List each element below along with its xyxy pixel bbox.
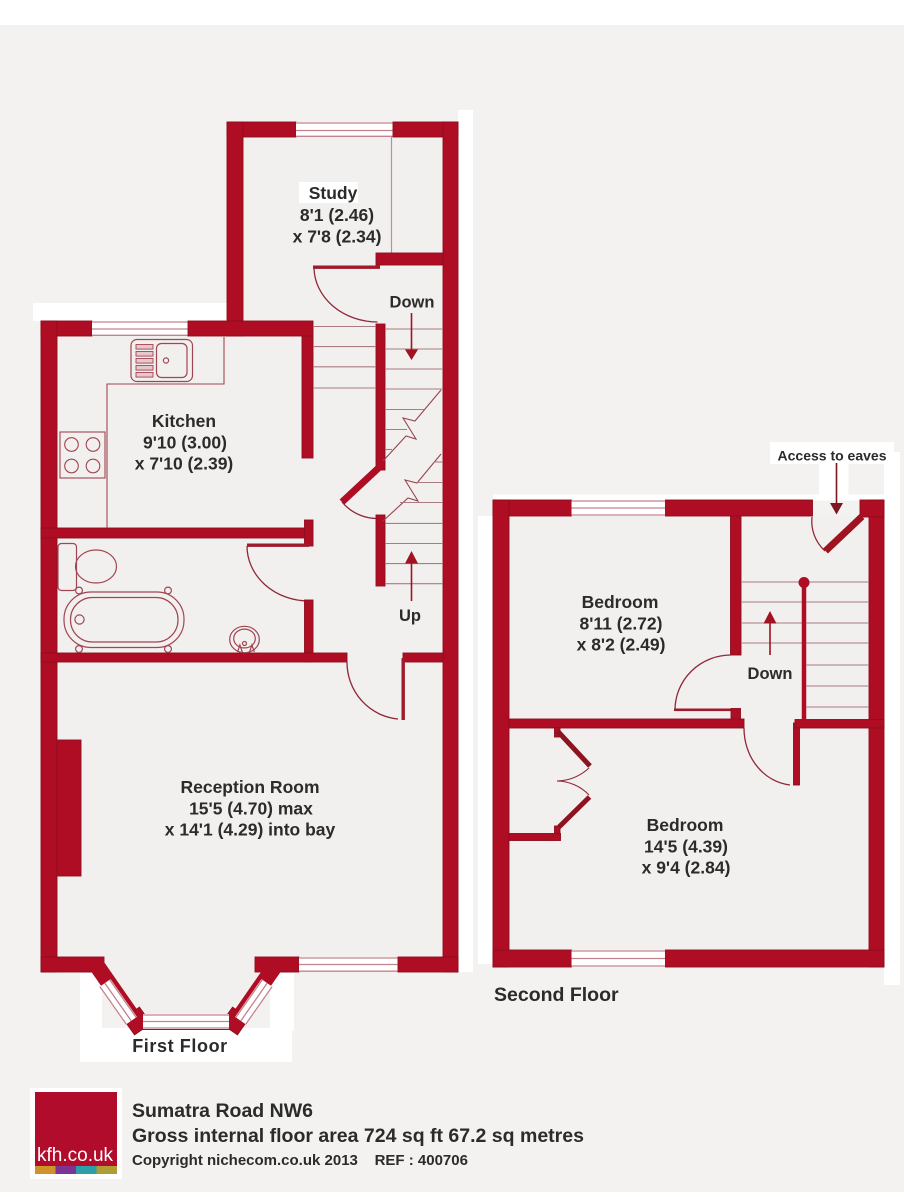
svg-text:Up: Up <box>399 607 421 625</box>
svg-text:Copyright nichecom.co.uk 2013: Copyright nichecom.co.uk 2013 REF : 4007… <box>132 1152 468 1169</box>
svg-text:First Floor: First Floor <box>132 1036 228 1056</box>
svg-text:x 7'8 (2.34): x 7'8 (2.34) <box>293 227 382 247</box>
svg-text:Kitchen: Kitchen <box>152 411 216 431</box>
svg-text:8'11 (2.72): 8'11 (2.72) <box>580 614 663 634</box>
svg-text:kfh.co.uk: kfh.co.uk <box>37 1145 114 1166</box>
svg-text:9'10 (3.00): 9'10 (3.00) <box>143 433 227 453</box>
svg-text:x 14'1 (4.29) into bay: x 14'1 (4.29) into bay <box>165 820 336 840</box>
svg-text:Gross internal floor area 724: Gross internal floor area 724 sq ft 67.2… <box>132 1125 584 1147</box>
svg-text:Second Floor: Second Floor <box>494 984 619 1006</box>
svg-text:Sumatra Road NW6: Sumatra Road NW6 <box>132 1100 313 1122</box>
svg-text:x 9'4 (2.84): x 9'4 (2.84) <box>642 858 731 878</box>
svg-text:8'1 (2.46): 8'1 (2.46) <box>300 205 374 225</box>
svg-text:x 8'2 (2.49): x 8'2 (2.49) <box>577 635 666 655</box>
svg-text:Down: Down <box>390 294 435 312</box>
svg-text:Study: Study <box>309 183 358 203</box>
svg-text:x 7'10 (2.39): x 7'10 (2.39) <box>135 454 234 474</box>
svg-text:Bedroom: Bedroom <box>647 815 724 835</box>
svg-text:Down: Down <box>748 665 793 683</box>
svg-text:15'5 (4.70) max: 15'5 (4.70) max <box>189 799 313 819</box>
svg-text:Access to eaves: Access to eaves <box>778 448 887 464</box>
svg-text:Bedroom: Bedroom <box>582 592 659 612</box>
svg-text:14'5 (4.39): 14'5 (4.39) <box>644 837 728 857</box>
svg-text:Reception Room: Reception Room <box>180 777 319 797</box>
